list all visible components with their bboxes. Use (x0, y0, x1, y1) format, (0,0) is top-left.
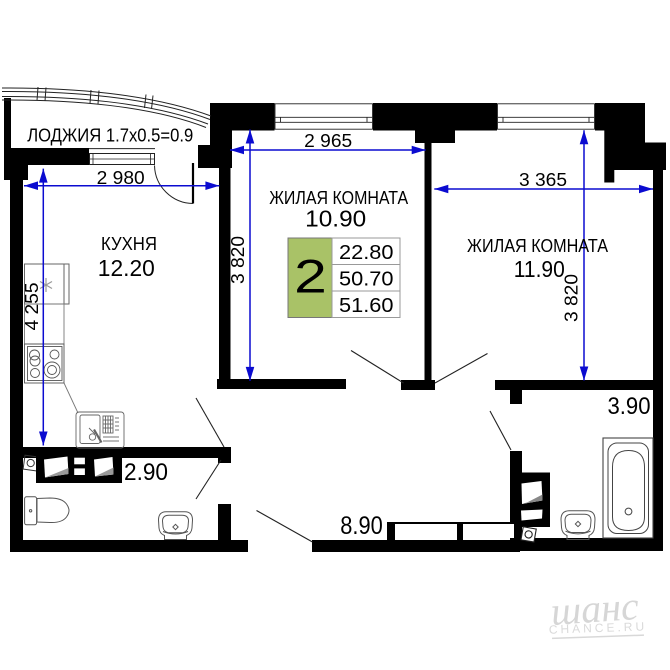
svg-text:3 820: 3 820 (228, 236, 248, 284)
svg-text:3 365: 3 365 (519, 170, 567, 190)
svg-text:ЛОДЖИЯ 1.7x0.5=0.9: ЛОДЖИЯ 1.7x0.5=0.9 (27, 126, 193, 146)
svg-text:8.90: 8.90 (340, 512, 383, 540)
svg-text:51.60: 51.60 (339, 294, 394, 317)
svg-text:22.80: 22.80 (339, 241, 394, 264)
svg-text:12.20: 12.20 (98, 255, 155, 281)
svg-text:2 965: 2 965 (304, 131, 352, 151)
svg-text:2.90: 2.90 (124, 459, 168, 486)
svg-text:2 980: 2 980 (97, 168, 145, 188)
svg-text:50.70: 50.70 (339, 268, 394, 291)
svg-text:КУХНЯ: КУХНЯ (101, 234, 157, 254)
svg-text:3.90: 3.90 (608, 393, 651, 420)
svg-text:2: 2 (294, 251, 327, 303)
svg-text:10.90: 10.90 (305, 206, 366, 232)
svg-text:4 255: 4 255 (22, 283, 42, 331)
svg-text:11.90: 11.90 (514, 256, 565, 282)
svg-text:ЖИЛАЯ КОМНАТА: ЖИЛАЯ КОМНАТА (467, 236, 608, 256)
